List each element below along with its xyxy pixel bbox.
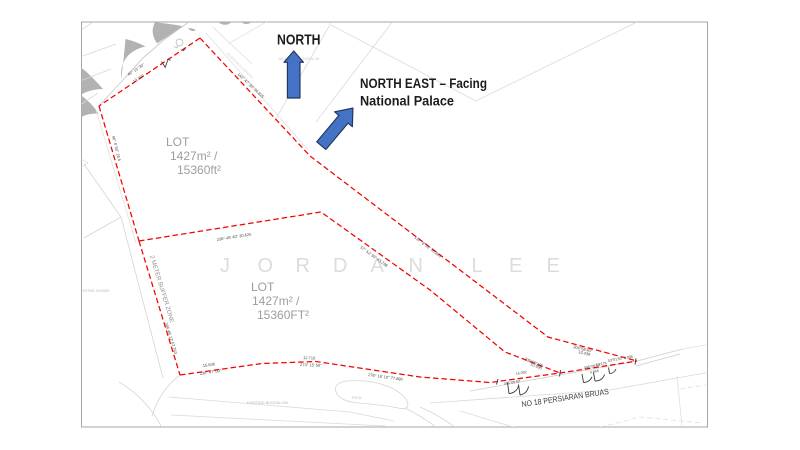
svg-text:2 METER BUFFER ZONE: 2 METER BUFFER ZONE [148, 255, 174, 324]
svg-text:3.658: 3.658 [589, 369, 599, 375]
svg-text:E: E [547, 255, 560, 277]
svg-text:EXISTING BUNGALOW: EXISTING BUNGALOW [247, 401, 288, 405]
svg-text:POOL: POOL [352, 396, 362, 400]
svg-text:L: L [472, 255, 483, 277]
svg-text:15360FT²: 15360FT² [257, 308, 309, 322]
svg-text:1427m² /: 1427m² / [252, 294, 300, 308]
svg-text:346°08'40": 346°08'40" [503, 379, 522, 386]
svg-text:D: D [333, 255, 347, 277]
svg-text:15.836: 15.836 [202, 361, 216, 368]
svg-text:1427m² /: 1427m² / [170, 149, 218, 163]
svg-text:R: R [296, 255, 310, 277]
svg-text:276° 16' 10" 77.880: 276° 16' 10" 77.880 [368, 372, 404, 382]
svg-text:346 48' 12' 57 763: 346 48' 12' 57 763 [164, 322, 179, 355]
svg-text:EXISTING HOUSES: EXISTING HOUSES [80, 289, 109, 293]
svg-text:O: O [258, 255, 274, 277]
svg-text:National Palace: National Palace [360, 94, 454, 109]
svg-text:273° 15' 50": 273° 15' 50" [300, 362, 322, 368]
svg-text:NORTH: NORTH [277, 31, 321, 48]
svg-text:N: N [409, 255, 423, 277]
svg-text:46° 4' 55" 28.5: 46° 4' 55" 28.5 [111, 135, 122, 162]
svg-text:12.716: 12.716 [303, 355, 316, 360]
svg-text:236° 47' 00": 236° 47' 00" [199, 368, 222, 376]
svg-text:E: E [509, 255, 522, 277]
svg-text:LOT: LOT [251, 280, 275, 294]
svg-text:LOT: LOT [166, 135, 190, 149]
svg-text:NORTH EAST – Facing: NORTH EAST – Facing [360, 76, 487, 91]
svg-text:J: J [220, 255, 230, 277]
svg-text:13.259: 13.259 [132, 73, 146, 84]
svg-text:15.092: 15.092 [515, 370, 527, 376]
svg-text:NO 18 PERSIARAN BRUAS: NO 18 PERSIARAN BRUAS [521, 387, 609, 409]
svg-text:236° 48' 40" 30.625: 236° 48' 40" 30.625 [216, 231, 252, 242]
svg-text:15360ft²: 15360ft² [177, 163, 221, 177]
